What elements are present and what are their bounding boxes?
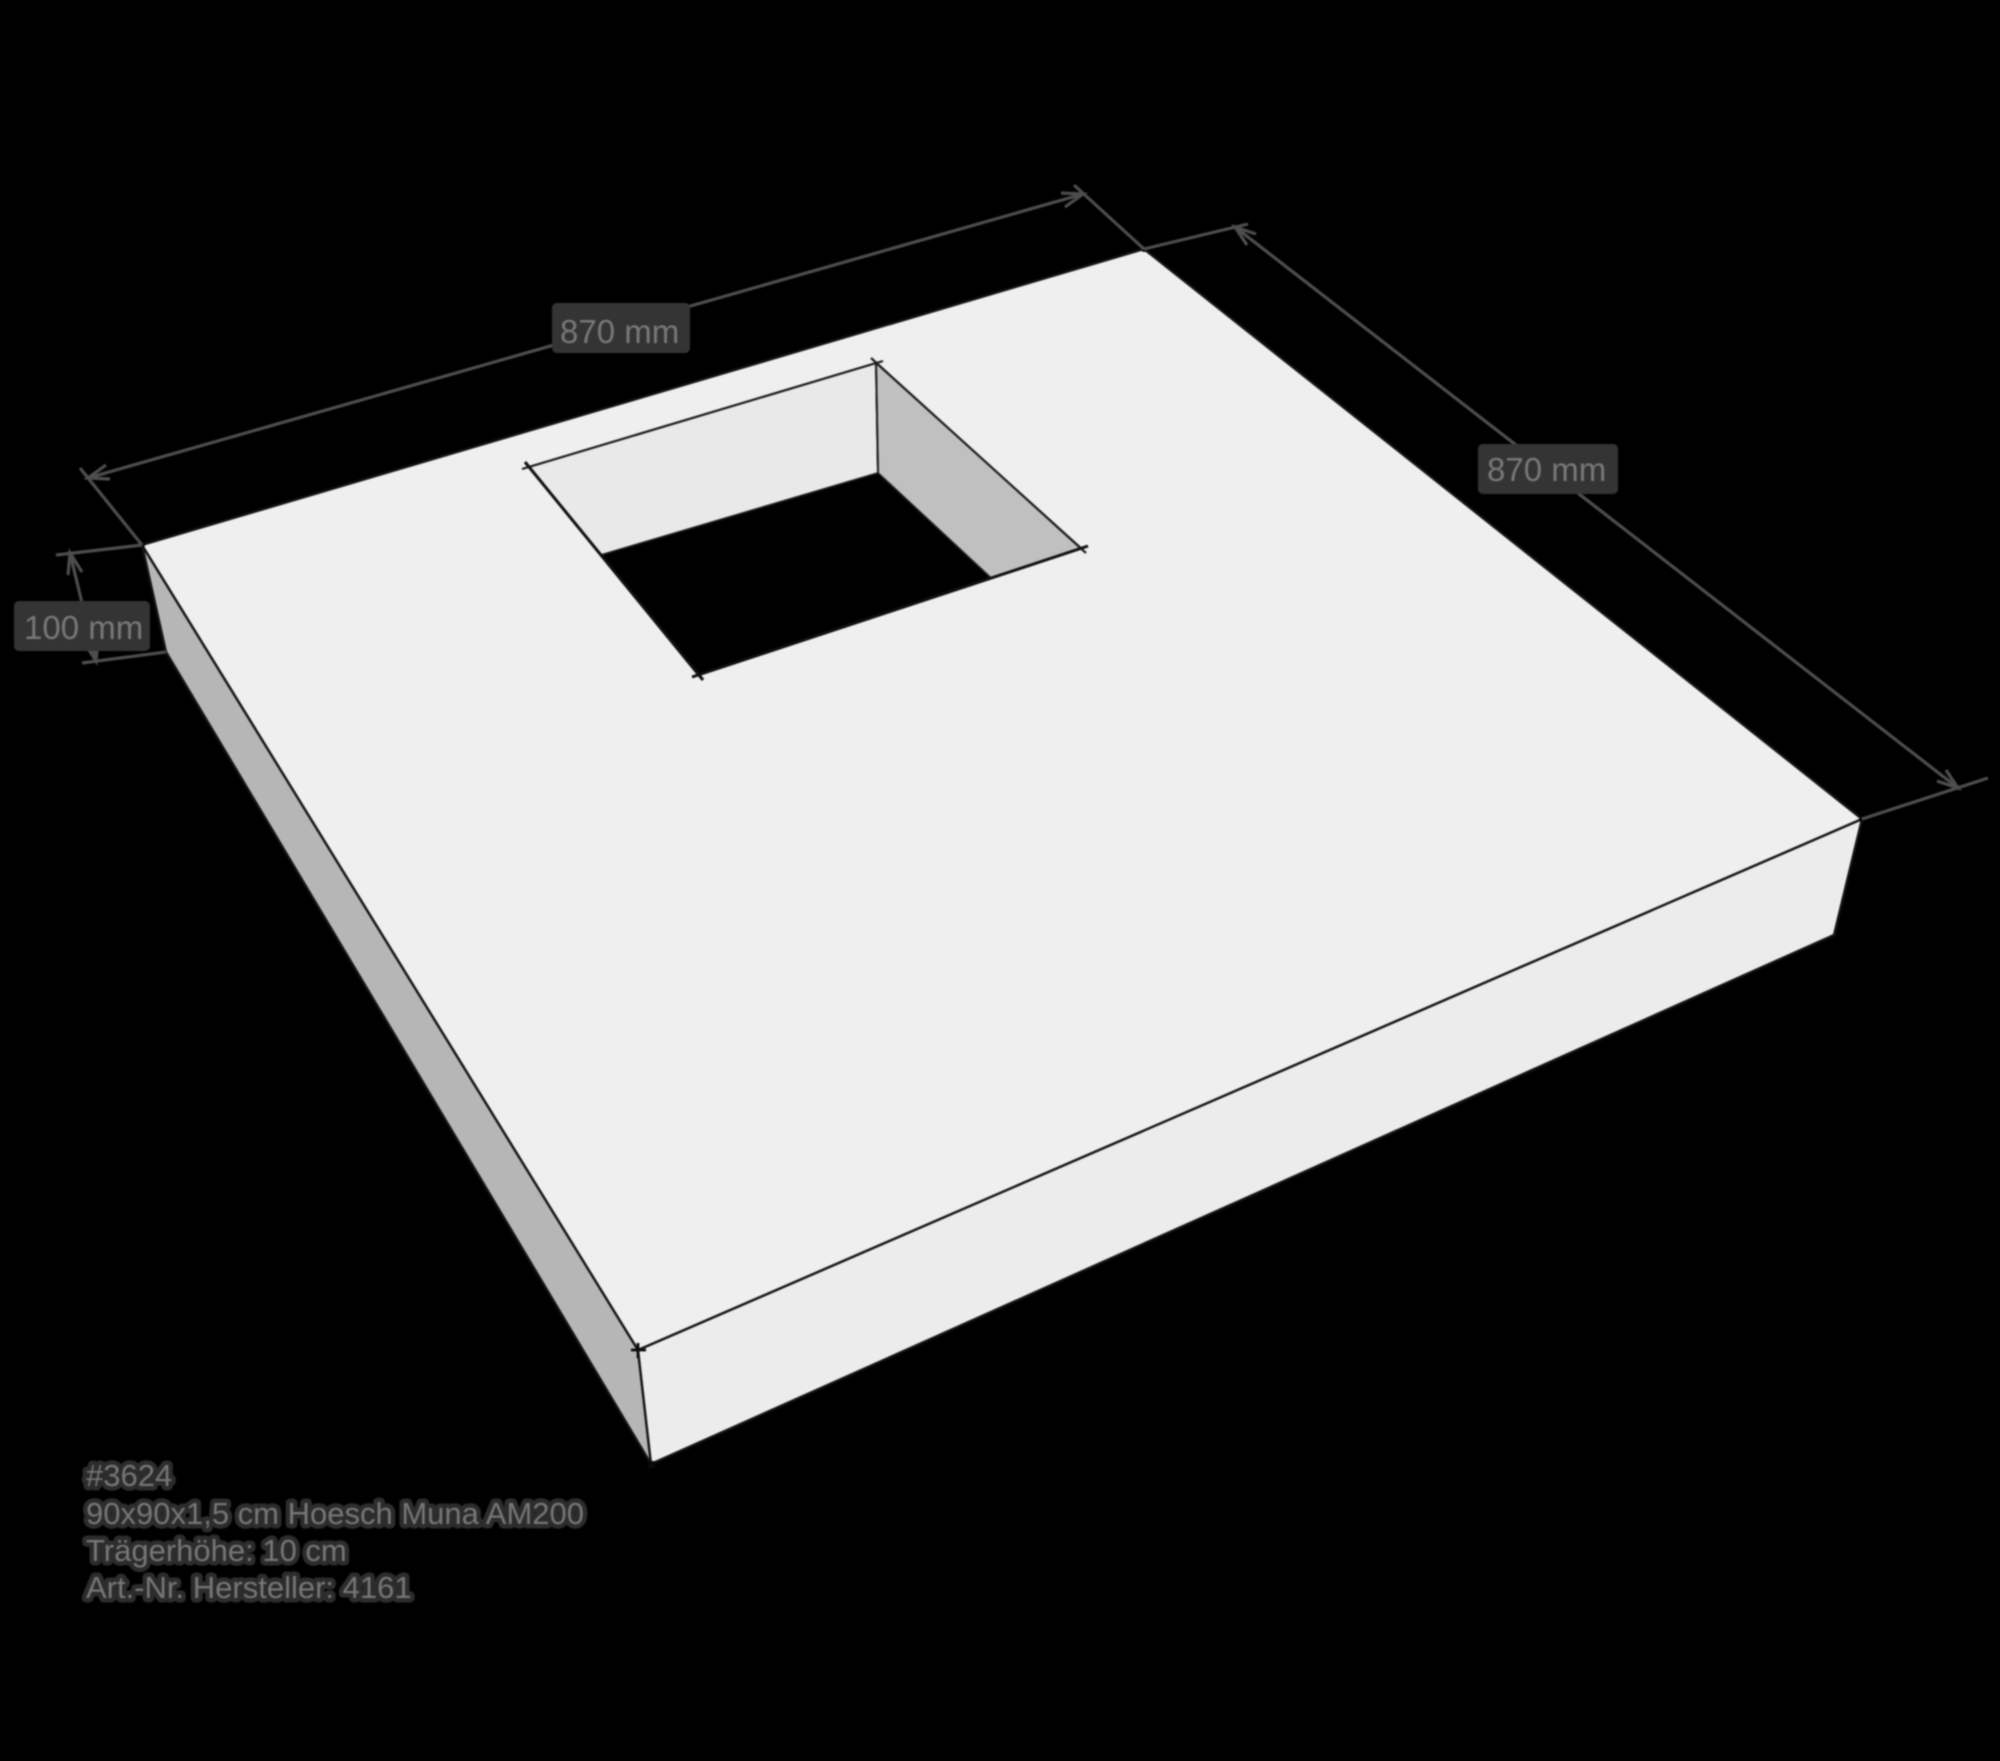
svg-text:90x90x1,5 cm Hoesch Muna AM200: 90x90x1,5 cm Hoesch Muna AM200 xyxy=(86,1496,584,1531)
svg-text:Art.-Nr. Hersteller: 4161: Art.-Nr. Hersteller: 4161 xyxy=(86,1570,412,1605)
svg-text:#3624: #3624 xyxy=(86,1458,172,1493)
svg-text:100 mm: 100 mm xyxy=(24,609,143,646)
svg-text:870 mm: 870 mm xyxy=(560,313,679,350)
svg-text:Trägerhöhe: 10 cm: Trägerhöhe: 10 cm xyxy=(86,1533,347,1568)
svg-text:870 mm: 870 mm xyxy=(1487,451,1606,488)
